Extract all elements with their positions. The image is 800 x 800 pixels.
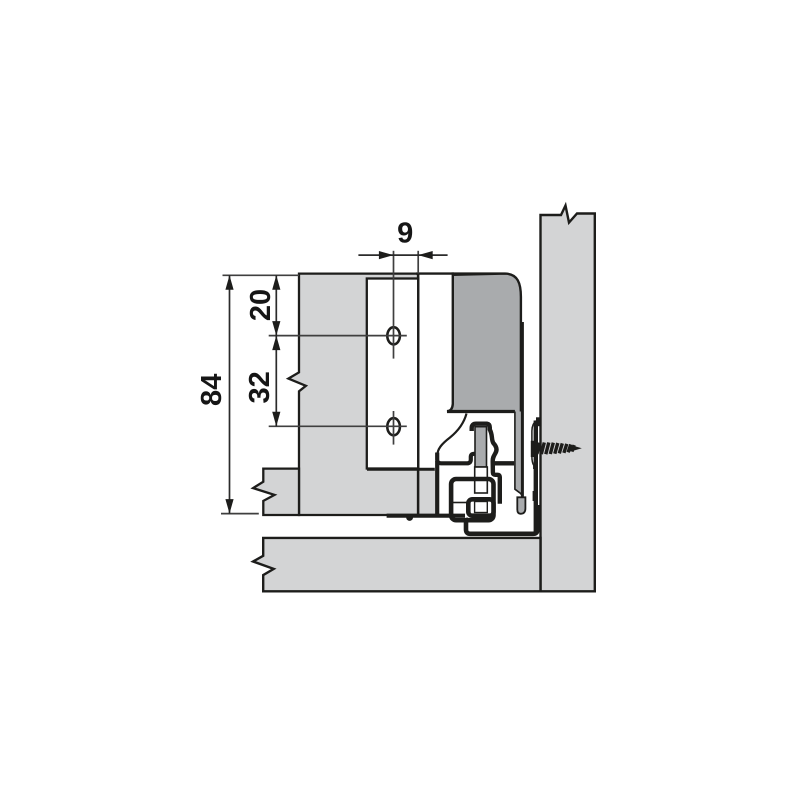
svg-text:84: 84 (196, 374, 228, 406)
svg-text:9: 9 (397, 218, 413, 250)
svg-text:20: 20 (245, 289, 277, 321)
svg-text:32: 32 (244, 371, 276, 403)
